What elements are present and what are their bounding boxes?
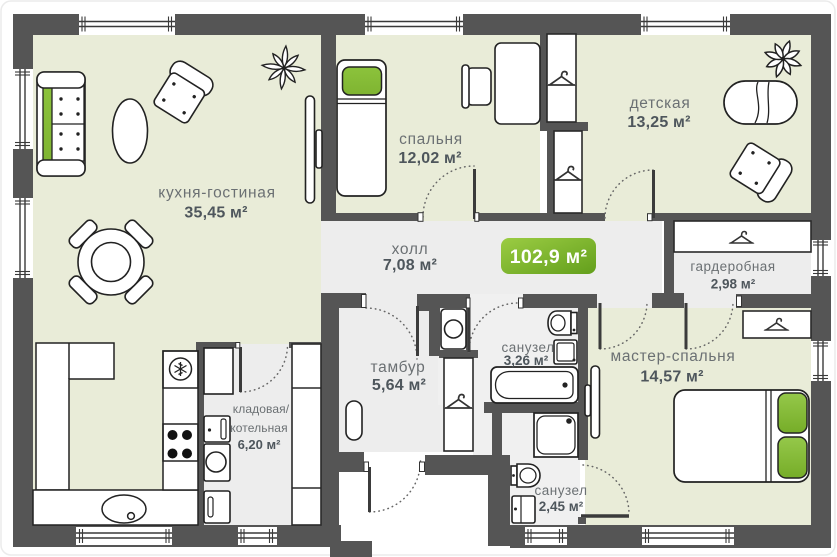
svg-text:холл: холл — [392, 241, 429, 258]
svg-text:13,25 м²: 13,25 м² — [627, 114, 690, 131]
svg-text:2,98 м²: 2,98 м² — [711, 277, 756, 292]
svg-text:3,26 м²: 3,26 м² — [504, 353, 549, 368]
svg-text:тамбур: тамбур — [371, 359, 426, 376]
svg-text:12,02 м²: 12,02 м² — [398, 150, 461, 167]
svg-text:детская: детская — [630, 95, 691, 112]
svg-text:102,9 м²: 102,9 м² — [510, 246, 588, 268]
svg-text:санузел: санузел — [535, 483, 588, 498]
svg-text:7,08 м²: 7,08 м² — [383, 257, 437, 274]
svg-text:5,64 м²: 5,64 м² — [372, 377, 426, 394]
svg-text:кладовая/: кладовая/ — [233, 402, 290, 416]
svg-text:кухня-гостиная: кухня-гостиная — [158, 185, 275, 202]
svg-text:2,45 м²: 2,45 м² — [539, 499, 584, 514]
svg-text:спальня: спальня — [399, 131, 463, 148]
svg-text:гардеробная: гардеробная — [690, 259, 775, 274]
svg-text:6,20 м²: 6,20 м² — [238, 437, 282, 452]
svg-text:35,45 м²: 35,45 м² — [184, 205, 247, 222]
svg-text:мастер-спальня: мастер-спальня — [611, 348, 736, 365]
svg-text:14,57 м²: 14,57 м² — [640, 369, 703, 386]
svg-text:котельная: котельная — [230, 421, 287, 435]
